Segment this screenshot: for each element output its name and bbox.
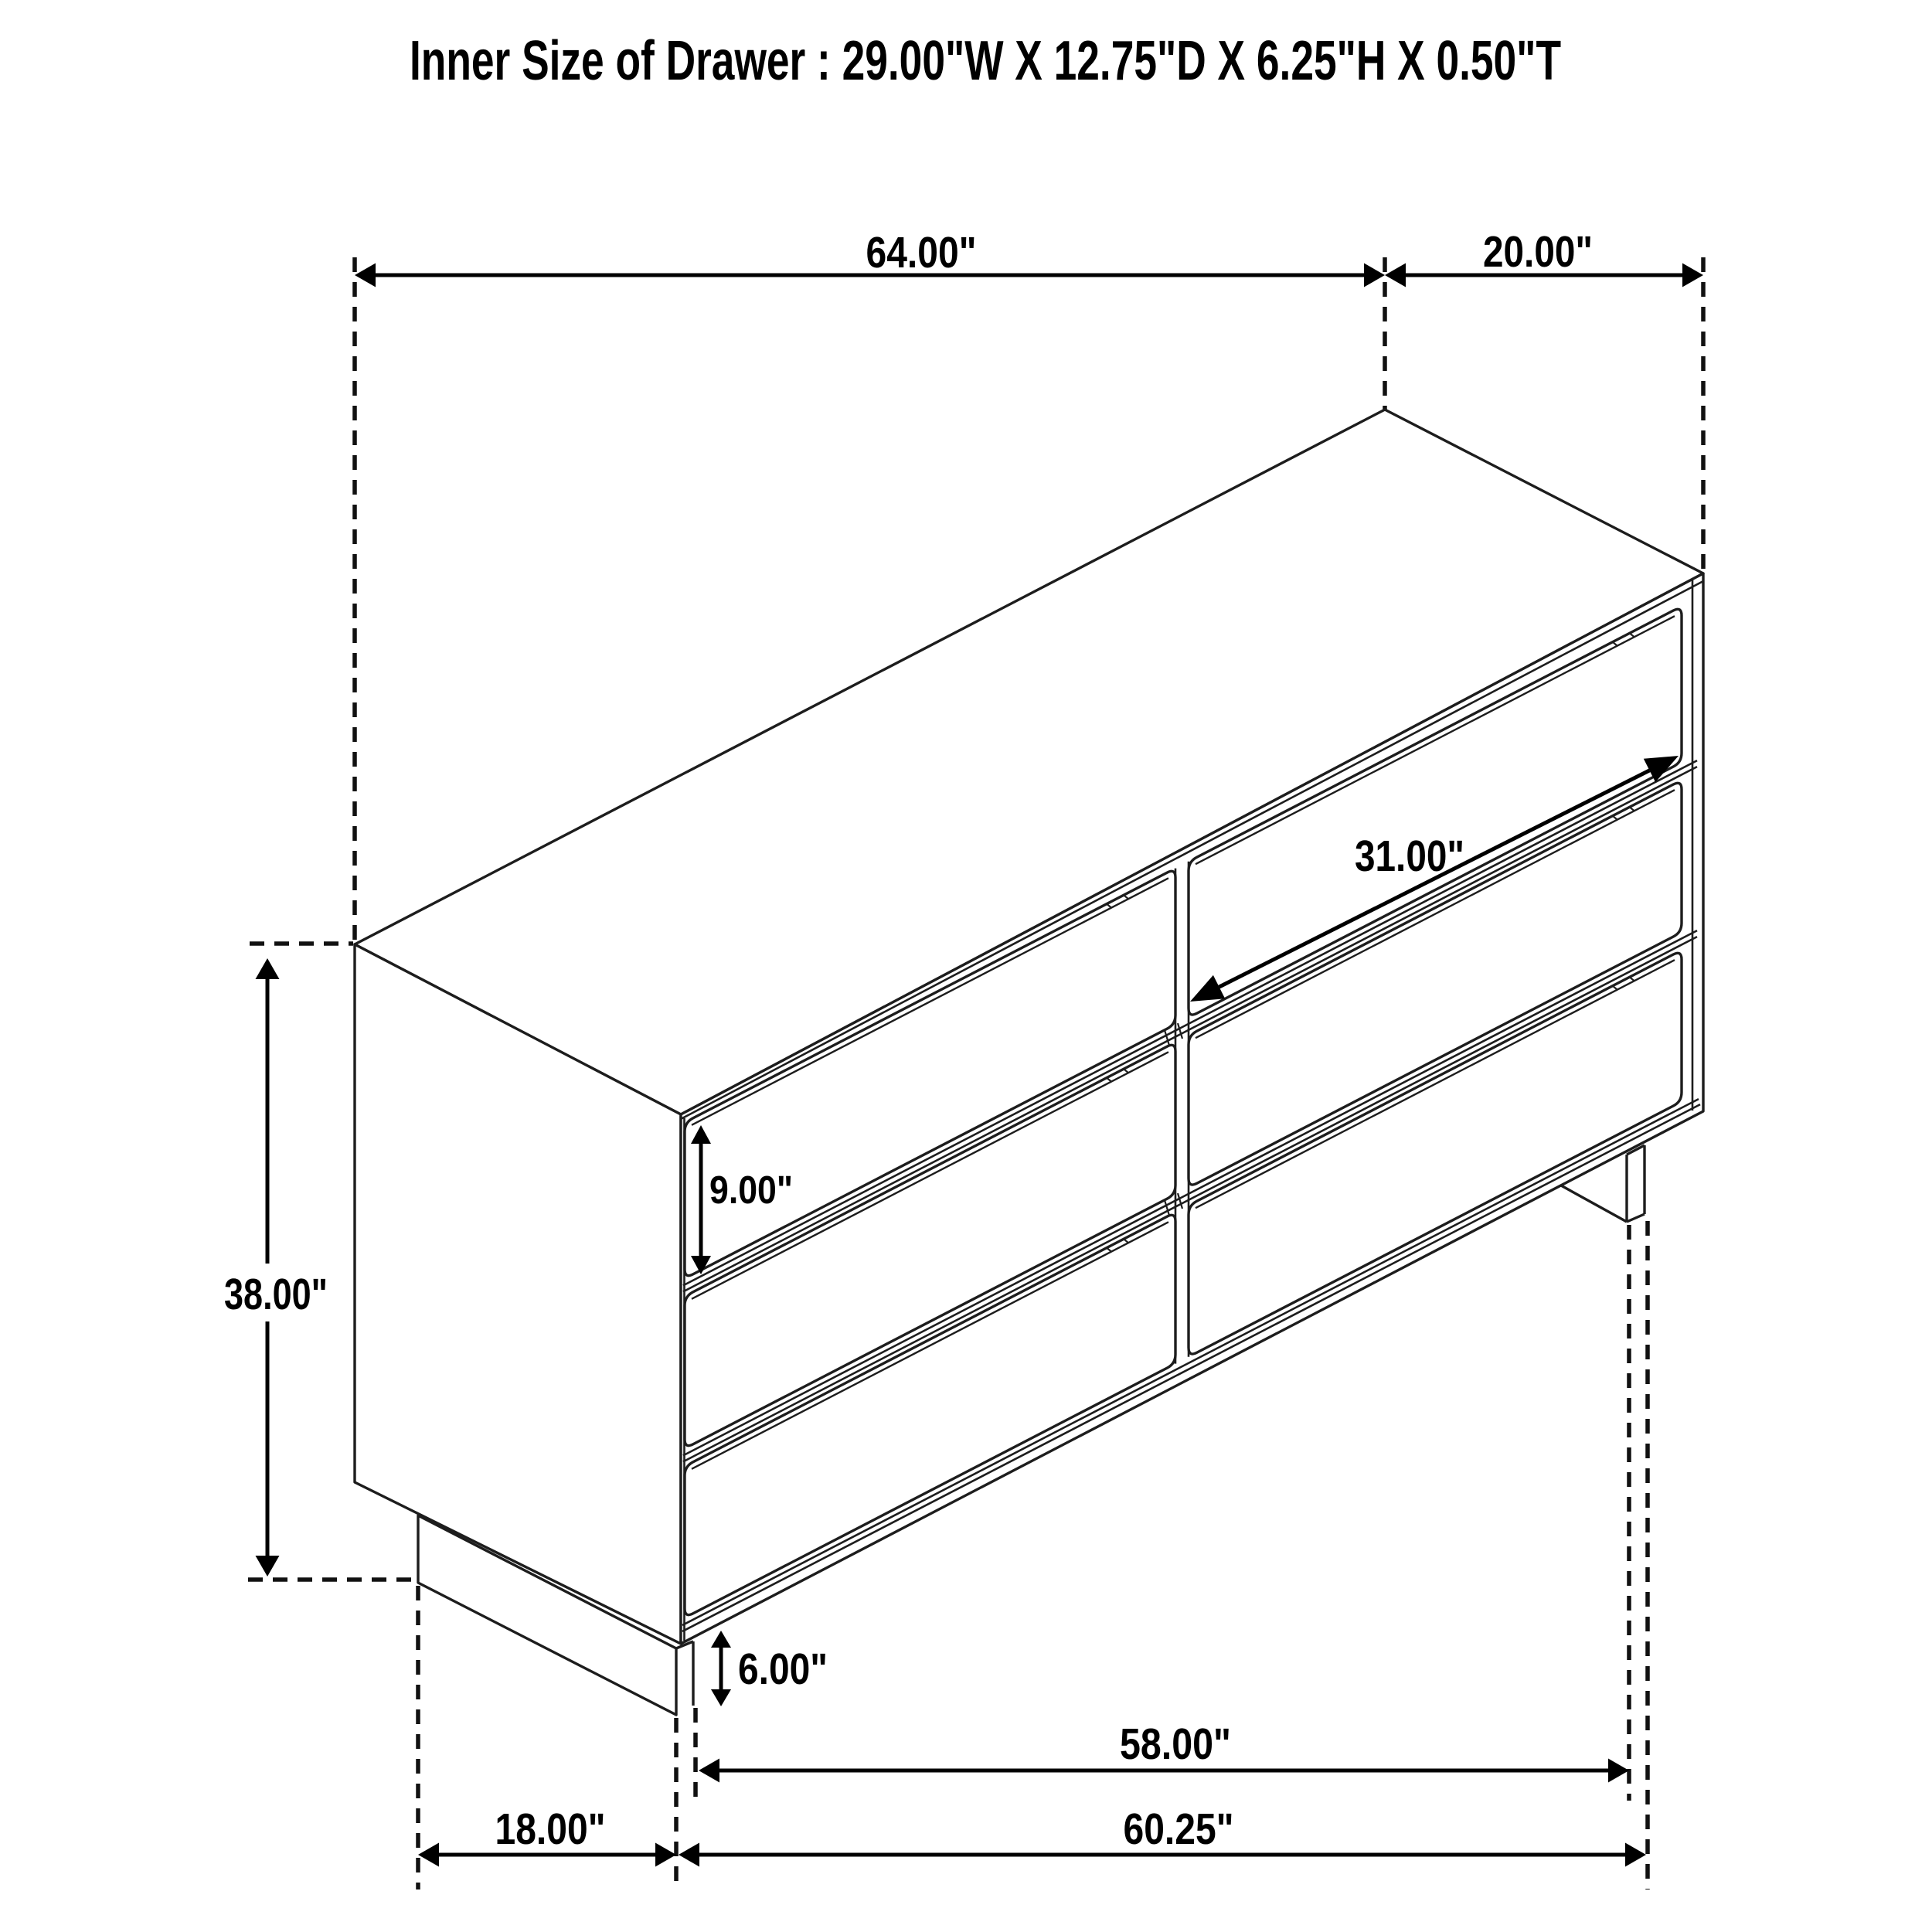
svg-text:38.00": 38.00" xyxy=(224,1270,328,1319)
svg-text:18.00": 18.00" xyxy=(495,1804,606,1854)
svg-text:31.00": 31.00" xyxy=(1355,832,1464,881)
svg-text:9.00": 9.00" xyxy=(709,1168,793,1212)
svg-text:60.25": 60.25" xyxy=(1124,1804,1234,1854)
svg-text:Inner Size of Drawer : 29.00"W: Inner Size of Drawer : 29.00"W X 12.75"D… xyxy=(410,30,1561,92)
svg-text:6.00": 6.00" xyxy=(738,1645,828,1694)
svg-text:20.00": 20.00" xyxy=(1483,227,1593,277)
svg-text:58.00": 58.00" xyxy=(1120,1719,1231,1769)
svg-text:64.00": 64.00" xyxy=(866,228,977,277)
